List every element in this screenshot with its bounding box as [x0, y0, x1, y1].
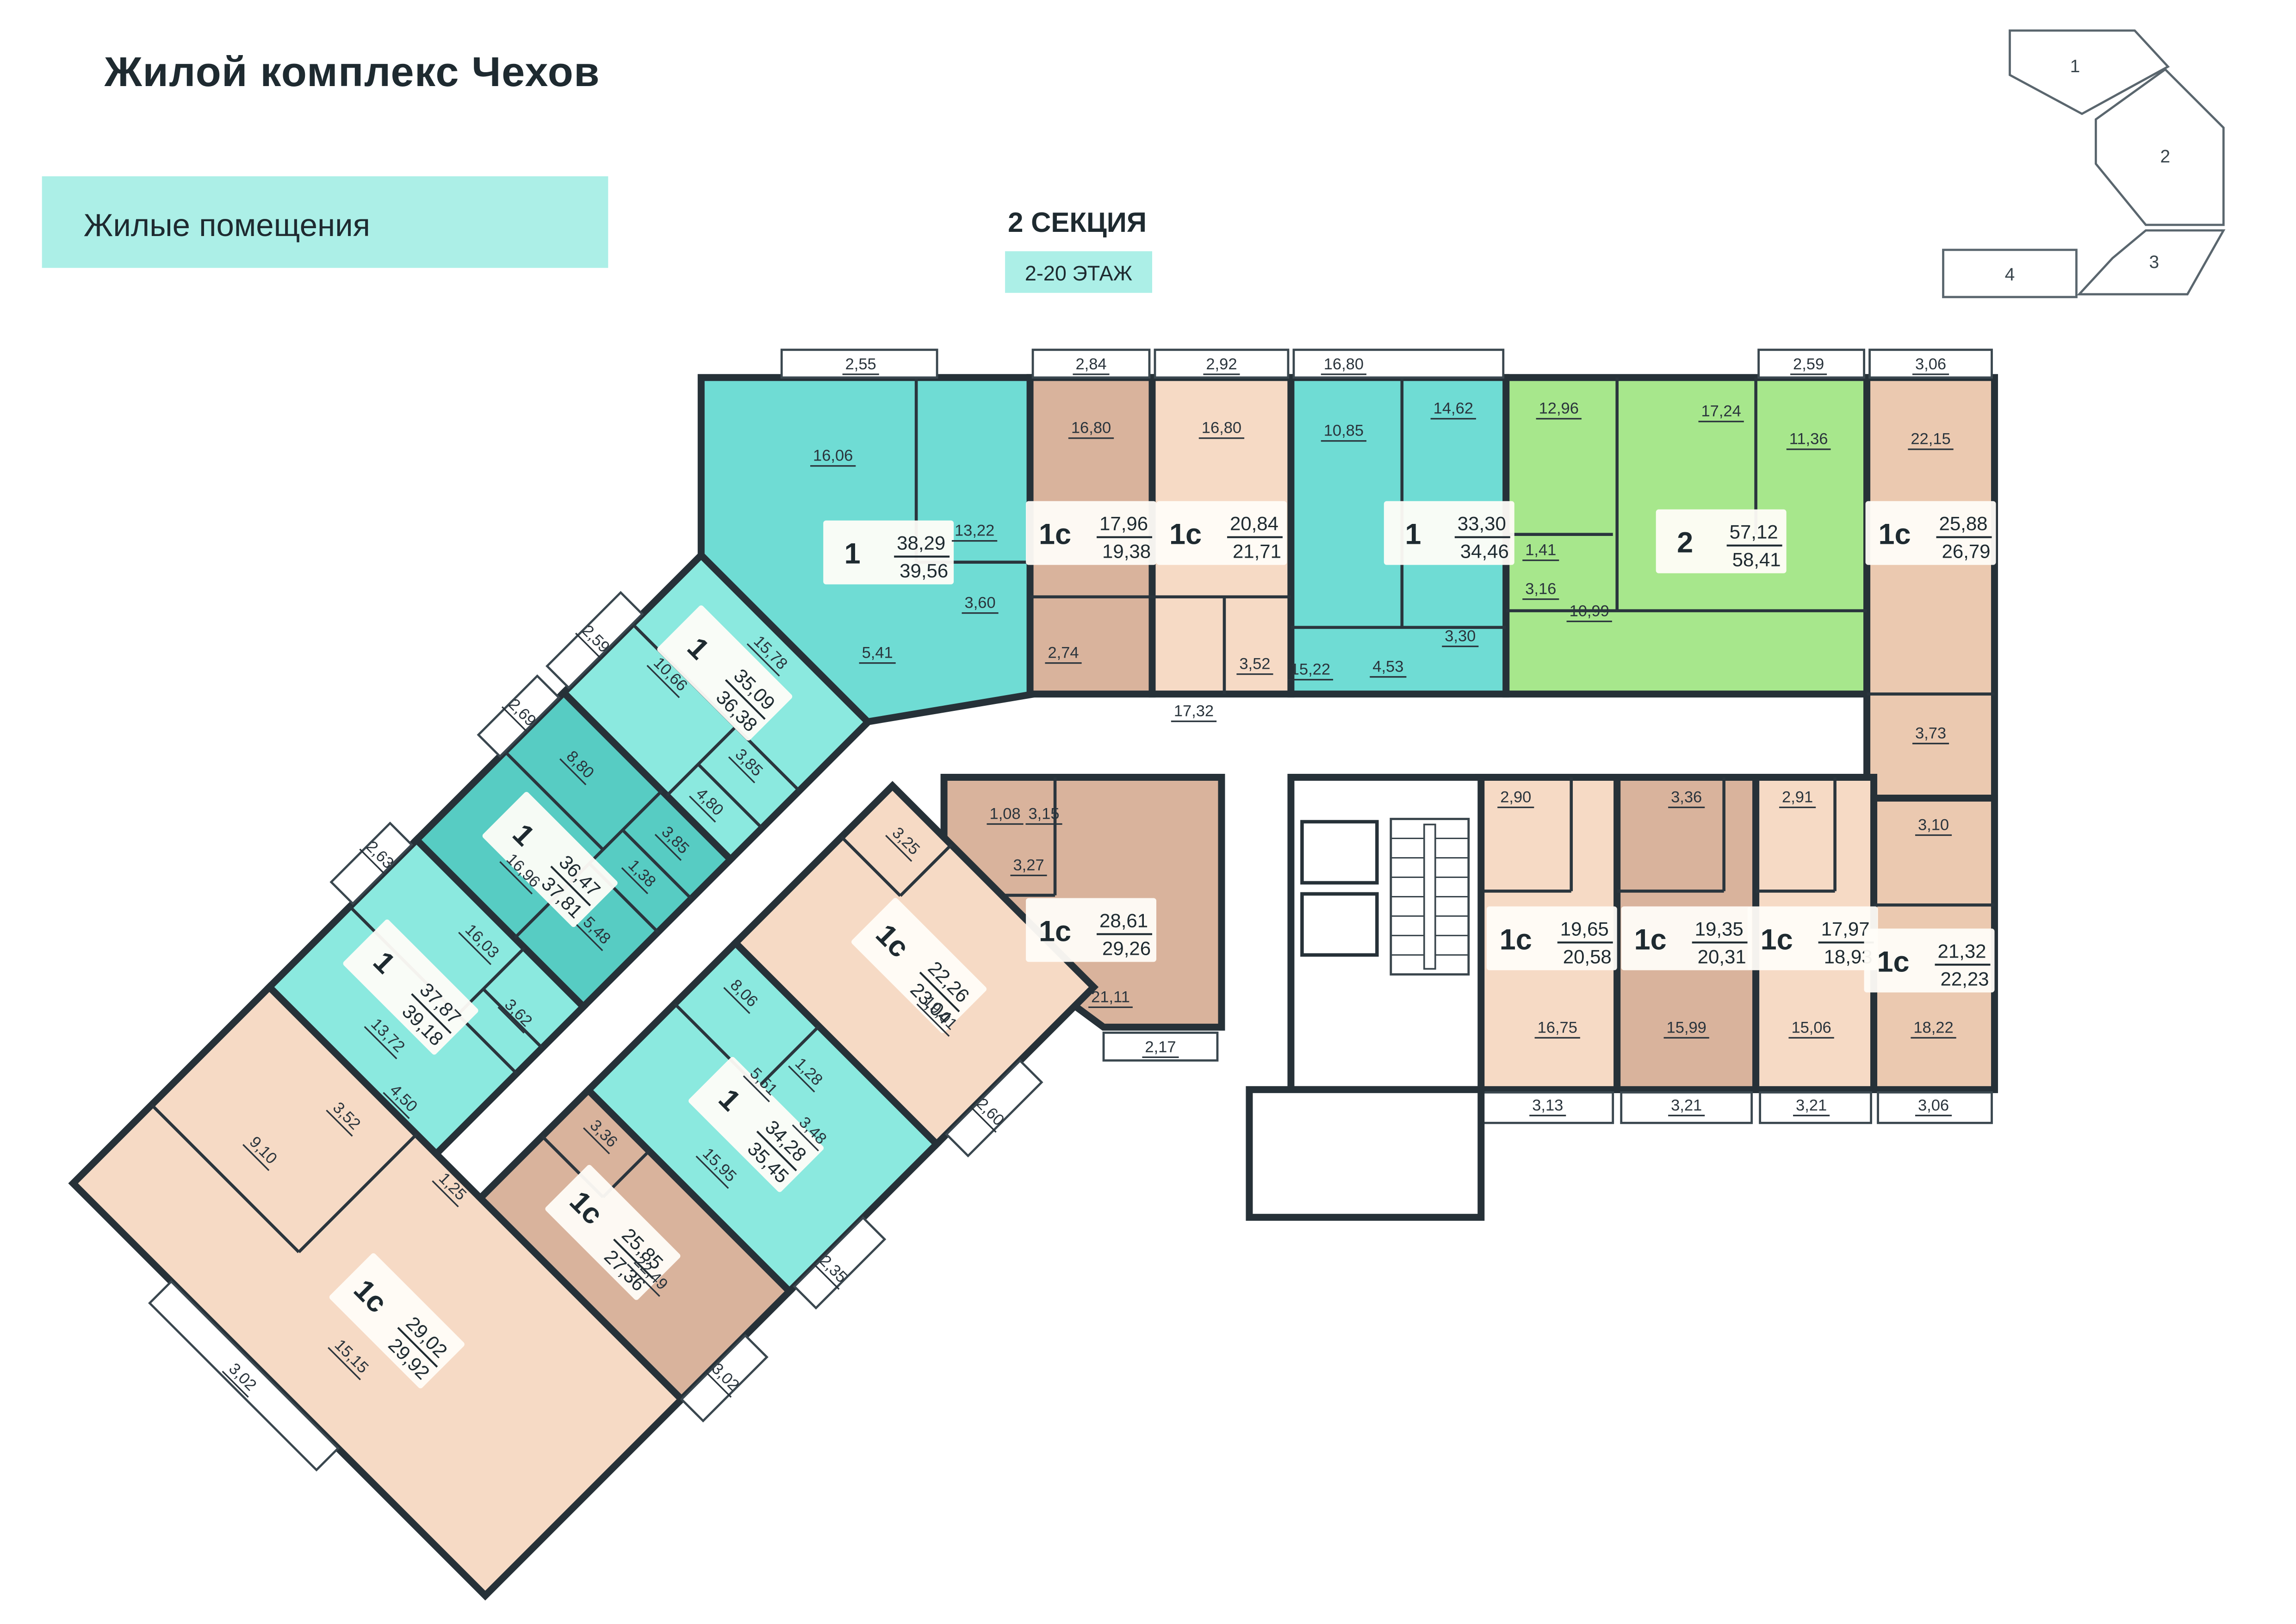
apartment-area-total: 22,23	[1941, 968, 1989, 989]
dim-value: 3,15	[1029, 805, 1060, 822]
dim-value: 3,16	[1525, 580, 1556, 598]
dim-value: 2,92	[1206, 355, 1237, 373]
dim-value: 14,62	[1433, 400, 1473, 417]
dim-value: 15,06	[1791, 1019, 1831, 1036]
dim-label: 1,08	[987, 805, 1024, 824]
dim-value: 3,13	[1532, 1096, 1563, 1114]
apartment-type: 1с	[1500, 923, 1532, 956]
dim-label: 3,30	[1442, 628, 1478, 647]
dim-value: 2,84	[1075, 355, 1106, 373]
dim-label: 2,17	[1142, 1038, 1179, 1057]
dim-label: 3,73	[1912, 725, 1949, 744]
minimap-label-2: 2	[2160, 147, 2171, 167]
elevator-shaft	[1302, 821, 1377, 883]
elevator-shaft	[1302, 894, 1377, 955]
apartment-label-a16: 1с19,3520,31	[1621, 906, 1752, 970]
dim-value: 16,80	[1324, 355, 1364, 373]
apartment-area-total: 19,38	[1102, 541, 1151, 562]
dim-value: 3,27	[1013, 856, 1044, 874]
dim-label: 5,41	[859, 644, 896, 663]
dim-label: 3,36	[1668, 789, 1705, 808]
dim-value: 15,99	[1667, 1019, 1706, 1036]
dim-label: 10,99	[1567, 603, 1612, 622]
apartment-type: 1	[844, 538, 861, 570]
dim-value: 13,22	[955, 522, 994, 540]
dim-value: 3,73	[1915, 725, 1946, 742]
dim-value: 2,59	[1793, 355, 1824, 373]
legend-label: Жилые помещения	[84, 207, 370, 243]
dim-label: 2,84	[1073, 355, 1109, 374]
dim-value: 2,91	[1782, 789, 1813, 806]
dim-label: 3,15	[1026, 805, 1062, 824]
apartment-type: 1с	[1761, 923, 1793, 956]
dim-label: 16,80	[1321, 355, 1366, 374]
apartment-label-a1: 138,2939,56	[823, 521, 954, 585]
apartment-label-a18: 1с21,3222,23	[1864, 928, 1995, 992]
apartment-type: 1с	[1039, 518, 1071, 551]
dim-value: 3,30	[1445, 628, 1476, 645]
dim-label: 3,16	[1522, 580, 1559, 599]
apartment-area-total: 20,31	[1698, 946, 1746, 967]
apartment-type: 1с	[1877, 946, 1910, 978]
apartment-label-a14: 1с28,6129,26	[1026, 898, 1156, 962]
dim-label: 10,85	[1321, 422, 1366, 441]
apartment-area-total: 34,46	[1460, 541, 1509, 562]
dim-value: 16,80	[1202, 419, 1241, 437]
dim-label: 15,22	[1288, 661, 1333, 680]
dim-value: 15,22	[1291, 661, 1330, 678]
dim-label: 3,13	[1529, 1096, 1566, 1115]
dim-label: 2,55	[843, 355, 879, 374]
apartment-area-net: 33,30	[1458, 513, 1506, 535]
dim-value: 3,21	[1671, 1096, 1702, 1114]
apartment-area-total: 20,58	[1563, 946, 1612, 967]
apartment-area-net: 19,65	[1560, 918, 1609, 940]
apartment-area-total: 58,41	[1732, 549, 1781, 571]
apartment-area-net: 17,96	[1099, 513, 1148, 535]
dim-label: 2,91	[1779, 789, 1816, 808]
dim-value: 3,52	[1239, 655, 1270, 673]
minimap-label-4: 4	[2005, 265, 2015, 285]
apartment-type: 1с	[1879, 518, 1911, 551]
page-title: Жилой комплекс Чехов	[104, 49, 600, 95]
dim-label: 4,53	[1370, 658, 1406, 677]
dim-value: 18,22	[1913, 1019, 1953, 1036]
apartment-label-a5: 257,1258,41	[1656, 510, 1787, 573]
dim-value: 3,10	[1918, 816, 1949, 834]
dim-value: 22,15	[1911, 430, 1950, 448]
dim-value: 10,85	[1324, 422, 1364, 440]
dim-value: 3,60	[965, 594, 996, 612]
dim-label: 21,11	[1088, 988, 1133, 1007]
dim-value: 1,41	[1525, 541, 1556, 559]
dim-label: 2,59	[1790, 355, 1827, 374]
apartment-type: 1с	[1039, 915, 1071, 947]
apartment-area-net: 19,35	[1695, 918, 1744, 940]
dim-label: 15,99	[1664, 1019, 1709, 1038]
apartment-label-a6: 1с25,8826,79	[1866, 501, 1996, 565]
dim-value: 17,32	[1174, 703, 1214, 720]
dim-value: 16,75	[1538, 1019, 1577, 1036]
dim-label: 17,24	[1699, 403, 1744, 422]
dim-value: 2,55	[845, 355, 876, 373]
apartment-type: 1	[1405, 518, 1421, 551]
dim-value: 21,11	[1091, 988, 1130, 1006]
dim-label: 14,62	[1431, 400, 1476, 419]
stair-elevator-core	[1249, 778, 1481, 1218]
dim-label: 11,36	[1787, 430, 1831, 449]
dim-label: 17,32	[1171, 703, 1216, 722]
dim-value: 3,21	[1796, 1096, 1827, 1114]
apartment-area-net: 28,61	[1099, 909, 1148, 931]
apartment-type: 1с	[1169, 518, 1202, 551]
apartment-label-a2: 1с17,9619,38	[1026, 501, 1156, 565]
dim-value: 3,06	[1915, 355, 1946, 373]
apartment-label-a3: 1с20,8421,71	[1156, 501, 1287, 565]
dim-label: 15,06	[1788, 1019, 1834, 1038]
minimap-label-3: 3	[2149, 252, 2159, 272]
dim-label: 16,06	[810, 447, 856, 466]
dim-value: 3,06	[1918, 1096, 1949, 1114]
dim-label: 3,52	[1236, 655, 1273, 674]
dim-label: 3,21	[1668, 1096, 1705, 1115]
dim-label: 16,75	[1535, 1019, 1580, 1038]
apartment-area-net: 38,29	[897, 532, 945, 554]
dim-value: 3,36	[1671, 789, 1702, 806]
dim-label: 16,80	[1199, 419, 1244, 438]
dim-value: 11,36	[1789, 430, 1828, 448]
dim-label: 2,92	[1203, 355, 1240, 374]
floorplan-page: Жилой комплекс Чехов Жилые помещения 2 С…	[0, 0, 2296, 1624]
floors-label: 2-20 ЭТАЖ	[1025, 261, 1132, 285]
dim-label: 3,06	[1912, 355, 1949, 374]
apartment-label-a4: 133,3034,46	[1384, 501, 1514, 565]
dim-label: 3,21	[1793, 1096, 1830, 1115]
apartment-type: 2	[1677, 527, 1693, 559]
dim-value: 17,24	[1701, 403, 1741, 420]
dim-label: 3,27	[1011, 856, 1047, 875]
dim-label: 3,10	[1915, 816, 1952, 835]
minimap-label-1: 1	[2070, 56, 2080, 76]
dim-value: 16,80	[1071, 419, 1111, 437]
apartment-area-net: 57,12	[1730, 521, 1778, 543]
dim-label: 13,22	[952, 522, 997, 541]
apartment-label-a15: 1с19,6520,58	[1487, 906, 1617, 970]
dim-value: 10,99	[1570, 603, 1609, 620]
dim-label: 18,22	[1911, 1019, 1956, 1038]
section-title: 2 СЕКЦИЯ	[1008, 207, 1147, 238]
dim-label: 1,41	[1522, 541, 1559, 560]
apartment-area-total: 39,56	[900, 560, 948, 582]
dim-value: 5,41	[862, 644, 893, 662]
dim-label: 3,60	[962, 594, 999, 613]
apartment-area-total: 21,71	[1233, 541, 1281, 562]
dim-label: 3,06	[1915, 1096, 1952, 1115]
entrance-lobby	[1249, 1089, 1481, 1217]
dim-label: 2,90	[1497, 789, 1534, 808]
dim-label: 12,96	[1536, 400, 1582, 419]
dim-value: 2,74	[1048, 644, 1079, 662]
dim-label: 16,80	[1068, 419, 1114, 438]
apartment-area-net: 25,88	[1939, 513, 1988, 535]
dim-value: 1,08	[990, 805, 1021, 822]
apartment-type: 1с	[1634, 923, 1667, 956]
dim-label: 2,74	[1045, 644, 1081, 663]
apartment-label-a17: 1с17,9718,93	[1748, 906, 1878, 970]
apartment-area-total: 29,26	[1102, 937, 1151, 959]
dim-label: 22,15	[1908, 430, 1953, 449]
stair-rail	[1424, 824, 1435, 969]
dim-value: 12,96	[1539, 400, 1579, 417]
apartment-area-total: 26,79	[1942, 541, 1991, 562]
apartment-area-net: 17,97	[1821, 918, 1870, 940]
dim-value: 16,06	[813, 447, 853, 465]
apartment-area-net: 20,84	[1230, 513, 1278, 535]
building-minimap: 1 2 3 4	[1943, 31, 2224, 297]
dim-value: 2,90	[1500, 789, 1531, 806]
apartment-area-net: 21,32	[1938, 940, 1986, 962]
dim-value: 4,53	[1372, 658, 1403, 676]
dim-value: 2,17	[1145, 1038, 1176, 1056]
